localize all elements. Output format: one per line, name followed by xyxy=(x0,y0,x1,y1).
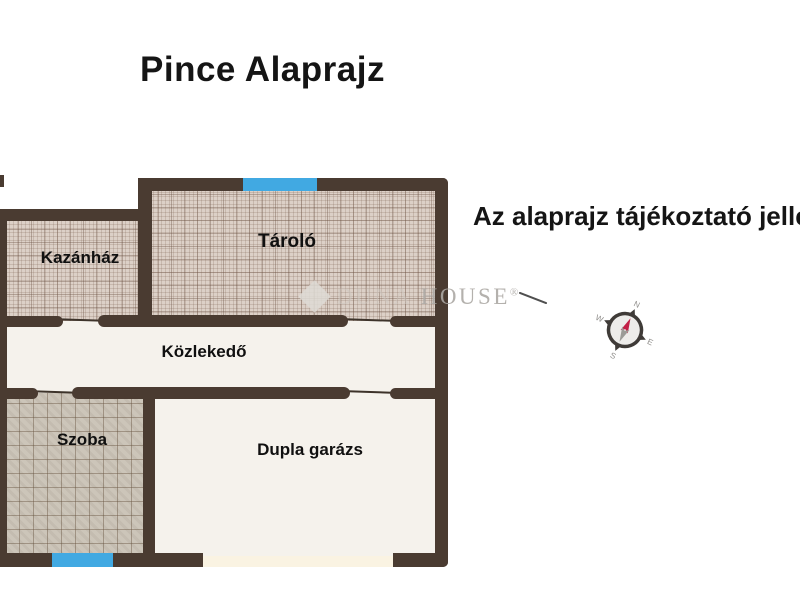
label-szoba: Szoba xyxy=(57,430,107,450)
stray-line-mark xyxy=(519,292,548,305)
window-tarolo xyxy=(243,178,317,191)
page-title: Pince Alaprajz xyxy=(140,50,385,90)
wall-corridor-bottom-a xyxy=(0,388,38,399)
wall-bottom-right xyxy=(393,553,448,567)
compass-n: N xyxy=(632,299,641,310)
floor-plan: Kazánház Tároló Közlekedő Szoba Dupla ga… xyxy=(0,170,455,570)
room-kazanhaz-area xyxy=(5,215,145,321)
wall-corridor-top-c xyxy=(390,316,448,327)
wall-corridor-top-b xyxy=(98,315,348,327)
room-szoba-area xyxy=(5,393,147,558)
wall-kazanhaz-top xyxy=(0,209,152,221)
disclaimer-text: Az alaprajz tájékoztató jellegű xyxy=(473,201,800,232)
wall-divider-szoba-garazs xyxy=(143,388,155,567)
label-dupla-garazs: Dupla garázs xyxy=(257,440,363,460)
room-dupla-garazs-area xyxy=(150,393,439,558)
page: { "title": "Pince Alaprajz", "disclaimer… xyxy=(0,0,800,600)
watermark-text: DUNA HOUSE® xyxy=(336,284,521,310)
wall-corridor-bottom-b xyxy=(72,387,350,399)
compass-e: E xyxy=(646,337,655,347)
window-szoba xyxy=(52,553,113,567)
wall-corridor-bottom-c xyxy=(390,388,448,399)
label-tarolo: Tároló xyxy=(258,231,316,253)
compass-s: S xyxy=(609,351,618,361)
wall-right xyxy=(435,178,448,567)
compass-w: W xyxy=(594,313,605,325)
watermark-part1: DUNA xyxy=(336,284,412,309)
label-kozlekedo: Közlekedő xyxy=(161,342,246,362)
label-kazanhaz: Kazánház xyxy=(41,248,119,268)
garage-door-opening xyxy=(203,556,393,567)
wall-corridor-top-a xyxy=(0,316,63,327)
compass-icon: N E S W xyxy=(592,297,658,363)
watermark-part2: HOUSE xyxy=(421,284,510,309)
wall-stub-left-edge xyxy=(0,175,4,187)
wall-divider-kazanhaz-tarolo xyxy=(138,178,152,326)
